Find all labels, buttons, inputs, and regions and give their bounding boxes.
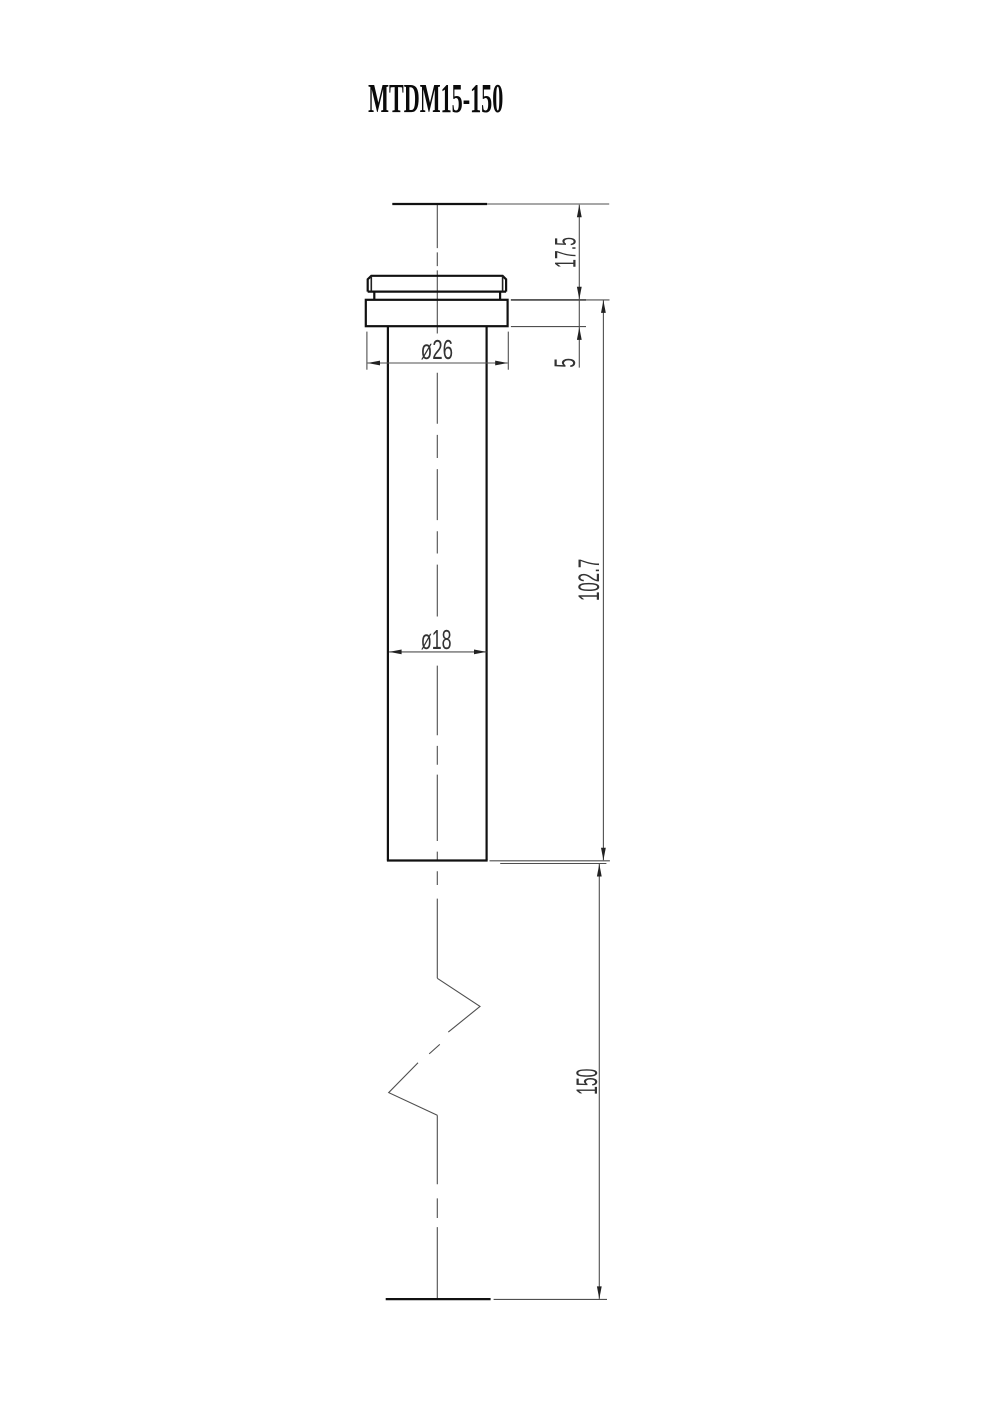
svg-text:ø26: ø26	[421, 334, 453, 365]
svg-text:150: 150	[571, 1069, 604, 1095]
svg-text:MTDM15-150: MTDM15-150	[368, 75, 503, 121]
svg-text:ø18: ø18	[421, 624, 452, 655]
svg-text:17.5: 17.5	[549, 237, 582, 268]
svg-text:102.7: 102.7	[573, 559, 606, 601]
svg-text:5: 5	[549, 358, 582, 368]
